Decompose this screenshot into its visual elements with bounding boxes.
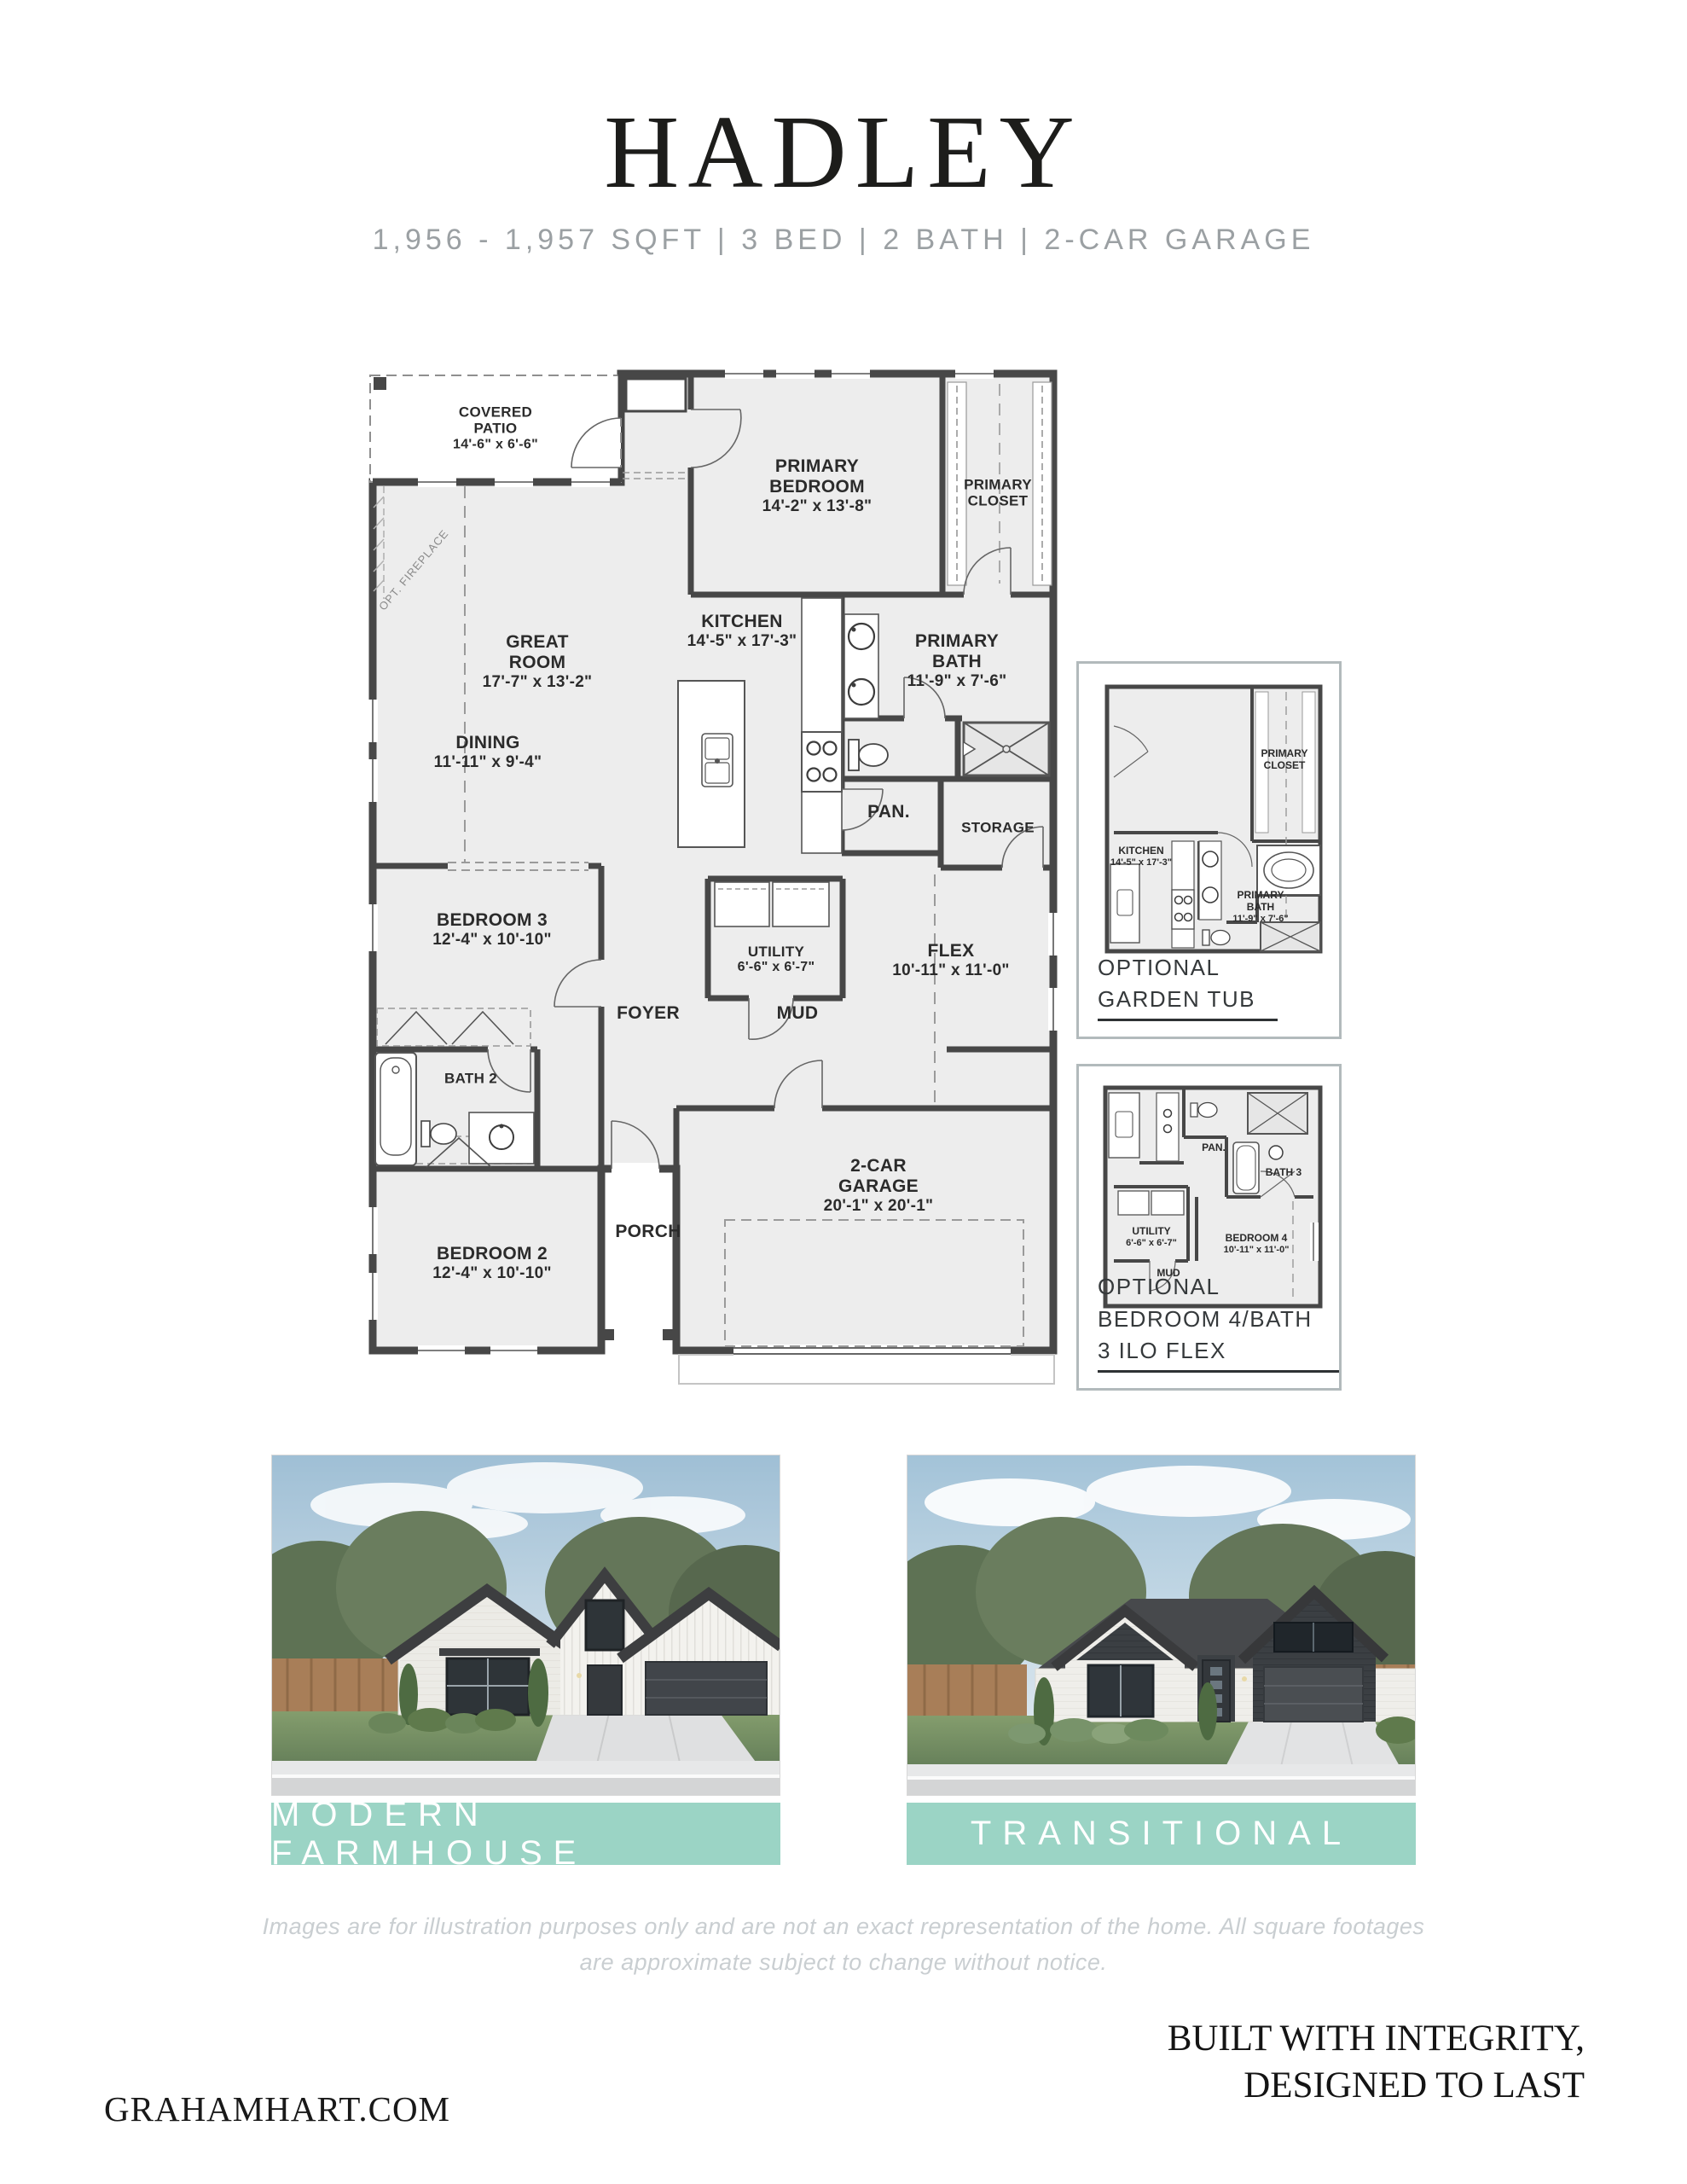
inset2-label-bedroom-4: BEDROOM 410'-11" x 11'-0" <box>1224 1233 1290 1255</box>
inset1-caption: OPTIONAL GARDEN TUB <box>1098 952 1278 1021</box>
inset-optional-bedroom4: PAN. BATH 3 UTILITY6'-6" x 6'-7" BEDROOM… <box>1076 1064 1342 1391</box>
brand-tagline: BUILT WITH INTEGRITY, DESIGNED TO LAST <box>1168 2015 1585 2109</box>
inset1-label-primary-bath: PRIMARYBATH11'-9" x 7'-6" <box>1232 890 1288 924</box>
porch-posts <box>603 1329 674 1340</box>
room-label-dining: DINING11'-11" x 9'-4" <box>434 733 542 772</box>
mini2-toilet <box>1191 1103 1217 1118</box>
room-label-bedroom-3: BEDROOM 312'-4" x 10'-10" <box>432 910 552 950</box>
room-label-mud: MUD <box>777 1003 819 1024</box>
mini2-cooktop <box>1157 1093 1179 1161</box>
mini-vanity <box>1199 841 1221 920</box>
front-door-opening <box>612 1163 659 1175</box>
garage-door <box>1264 1667 1363 1722</box>
mini2-shower <box>1248 1093 1307 1134</box>
room-label-foyer: FOYER <box>617 1003 680 1024</box>
inset2-caption: OPTIONAL BEDROOM 4/BATH 3 ILO FLEX <box>1098 1271 1339 1373</box>
mini2-island <box>1109 1093 1139 1158</box>
flyer-page: HADLEY 1,956 - 1,957 SQFT | 3 BED | 2 BA… <box>0 0 1687 2184</box>
room-label-utility: UTILITY6'-6" x 6'-7" <box>738 944 815 976</box>
inset-optional-garden-tub: KITCHEN14'-5" x 17'-3" PRIMARYCLOSET PRI… <box>1076 661 1342 1039</box>
kitchen-island <box>678 681 745 847</box>
room-label-covered-patio: COVEREDPATIO14'-6" x 6'-6" <box>453 404 538 453</box>
mini-shower <box>1261 922 1320 951</box>
primary-bath-vanity <box>844 614 878 718</box>
inset2-label-pantry: PAN. <box>1202 1142 1226 1154</box>
modern-farmhouse-rendering <box>271 1455 780 1796</box>
tagline-line-1: BUILT WITH INTEGRITY, <box>1168 2018 1585 2059</box>
room-label-pantry: PAN. <box>867 802 910 822</box>
disclaimer-text: Images are for illustration purposes onl… <box>255 1909 1432 1981</box>
caption-modern-farmhouse: MODERN FARMHOUSE <box>271 1803 780 1865</box>
floor-plan-drawing <box>367 367 1062 1391</box>
inset2-label-utility: UTILITY6'-6" x 6'-7" <box>1126 1226 1177 1248</box>
room-label-great-room: GREATROOM17'-7" x 13'-2" <box>483 632 593 692</box>
inset1-label-kitchen: KITCHEN14'-5" x 17'-3" <box>1110 845 1172 868</box>
bath2-tub <box>375 1053 416 1165</box>
mini-island <box>1110 864 1139 943</box>
kitchen-counter <box>802 598 842 853</box>
garden-tub-mini-plan <box>1090 675 1328 956</box>
bath2-toilet <box>421 1121 456 1147</box>
mini-cooktop <box>1172 890 1194 929</box>
page-subtitle: 1,956 - 1,957 SQFT | 3 BED | 2 BATH | 2-… <box>0 224 1687 257</box>
room-label-bath-2: BATH 2 <box>444 1070 497 1086</box>
room-label-porch: PORCH <box>615 1222 681 1242</box>
room-label-garage: 2-CARGARAGE20'-1" x 20'-1" <box>824 1156 934 1216</box>
mini2-tub <box>1233 1142 1259 1194</box>
mini-garden-tub <box>1257 845 1320 895</box>
primary-shower <box>964 723 1049 775</box>
mini-toilet <box>1203 930 1230 945</box>
caption-transitional: TRANSITIONAL <box>907 1803 1416 1865</box>
transitional-rendering <box>907 1455 1416 1796</box>
mini2-appliances <box>1118 1191 1184 1215</box>
page-title: HADLEY <box>0 101 1687 205</box>
room-label-primary-bath: PRIMARYBATH11'-9" x 7'-6" <box>907 631 1007 691</box>
room-label-primary-bedroom: PRIMARYBEDROOM14'-2" x 13'-8" <box>762 456 872 516</box>
room-label-flex: FLEX10'-11" x 11'-0" <box>892 941 1010 980</box>
room-label-bedroom-2: BEDROOM 212'-4" x 10'-10" <box>432 1244 552 1283</box>
website-url: GRAHAMHART.COM <box>104 2088 450 2129</box>
inset1-label-primary-closet: PRIMARYCLOSET <box>1261 748 1308 772</box>
room-label-kitchen: KITCHEN14'-5" x 17'-3" <box>687 612 797 651</box>
floor-plan: COVEREDPATIO14'-6" x 6'-6" PRIMARYBEDROO… <box>367 367 1062 1391</box>
garage-apron <box>679 1355 1054 1384</box>
garage-door <box>646 1662 767 1715</box>
inset2-label-bath-3: BATH 3 <box>1266 1167 1301 1179</box>
tagline-line-2: DESIGNED TO LAST <box>1244 2065 1585 2106</box>
room-label-storage: STORAGE <box>961 819 1035 835</box>
room-label-primary-closet: PRIMARYCLOSET <box>964 477 1032 510</box>
mini2-sink <box>1269 1146 1283 1159</box>
